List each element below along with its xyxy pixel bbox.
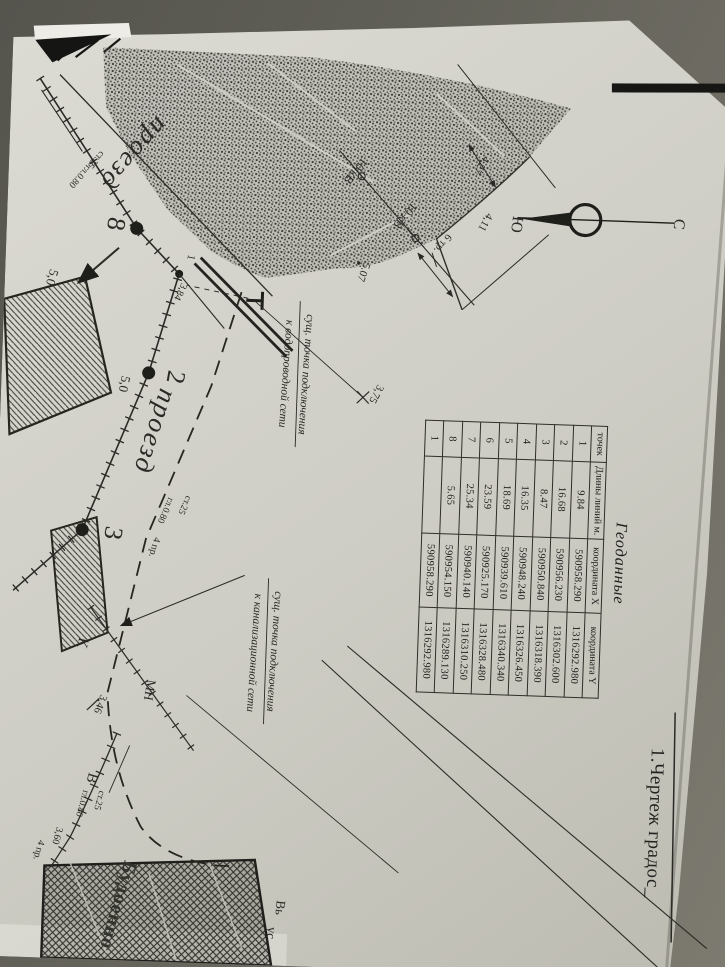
cell-y: 1316289.130 — [434, 608, 455, 694]
edge-label: ус. — [263, 926, 280, 943]
cell-x: 590958.290 — [567, 538, 588, 613]
cell-length: 18.69 — [495, 459, 516, 537]
cell-x: 590954.150 — [437, 534, 458, 609]
column-header-lengths: Длины линий м. — [588, 462, 606, 540]
geodata-table-block: Геоданные точек Длины линий м. координат… — [415, 420, 633, 701]
cell-length — [421, 456, 442, 534]
cell-point: 7 — [461, 421, 481, 458]
cell-point: 5 — [498, 423, 518, 460]
geodata-table: точек Длины линий м. координата X коорди… — [415, 420, 608, 699]
cell-x: 590939.610 — [493, 536, 514, 611]
cell-point: 1 — [424, 420, 444, 457]
column-header-y: координата Y — [582, 613, 601, 698]
cell-x: 590956.230 — [548, 538, 569, 613]
cell-y: 1316302.600 — [545, 611, 566, 697]
cell-length: 16.35 — [514, 459, 535, 537]
cell-x: 590948.240 — [511, 536, 532, 611]
cell-point: 8 — [443, 421, 463, 458]
survey-drawing-sheet: проезд ст.25 В гл.0.80 8 5,0 1 3,84 2 5,… — [0, 0, 725, 967]
column-header-points: точек — [591, 426, 608, 463]
cell-length: 5.65 — [440, 457, 461, 535]
cell-x: 590950.840 — [530, 537, 551, 612]
cell-y: 1316340.340 — [490, 610, 511, 696]
cell-length: 25.34 — [458, 457, 479, 535]
edge-label: Вь — [272, 900, 288, 916]
cell-point: 1 — [572, 425, 592, 462]
hatched-building-budyonny — [41, 853, 275, 966]
cell-y: 1316292.980 — [564, 612, 585, 698]
compass-north-label: С — [670, 218, 688, 231]
compass-south-label: Ю — [507, 215, 526, 233]
cell-point: 2 — [554, 425, 574, 462]
cell-point: 6 — [480, 422, 500, 459]
cell-y: 1316292.980 — [416, 607, 437, 693]
cell-x: 590940.140 — [456, 534, 477, 609]
cell-length: 23.59 — [477, 458, 498, 536]
column-header-x: координата X — [585, 539, 603, 614]
cell-y: 1316318.390 — [527, 611, 548, 697]
cell-y: 1316310.250 — [453, 608, 474, 694]
cell-length: 16.68 — [551, 461, 572, 539]
cell-y: 1316328.480 — [471, 609, 492, 695]
cell-x: 590958.290 — [419, 533, 440, 608]
cell-y: 1316326.450 — [508, 610, 529, 696]
cell-length: 9.84 — [569, 461, 590, 539]
cell-point: 3 — [535, 424, 555, 461]
photo-of-document: проезд ст.25 В гл.0.80 8 5,0 1 3,84 2 5,… — [0, 0, 725, 967]
cell-length: 8.47 — [532, 460, 553, 538]
cell-x: 590925.170 — [474, 535, 495, 610]
cell-point: 4 — [517, 423, 537, 460]
